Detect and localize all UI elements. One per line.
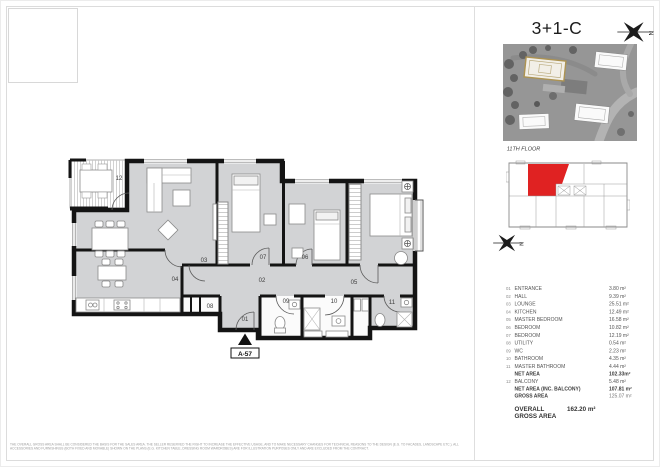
room-label: 02	[259, 278, 266, 284]
legend-row: 03LOUNGE25.51 m²	[506, 301, 654, 309]
site-building-highlighted	[524, 57, 566, 81]
disclaimer-text: THE OVERALL GROSS AREA SHALL BE CONSIDER…	[10, 443, 462, 451]
area-legend: 01ENTRANCE3.80 m² 02HALL9.39 m² 03LOUNGE…	[506, 285, 654, 419]
room-label: 01	[242, 317, 249, 323]
panel-divider	[474, 7, 475, 460]
kitchen-counter	[76, 298, 180, 312]
site-building-3	[574, 103, 610, 123]
room-label: 05	[351, 280, 358, 286]
legend-row: 12BALCONY5.48 m²	[506, 378, 654, 386]
site-building-4	[519, 113, 550, 129]
unit-type-title: 3+1-C	[477, 18, 637, 39]
plan-sheet: 12 03 04 02 07 06 05 01 08 09 10 11 A-57…	[0, 0, 660, 467]
legend-row: 09WC2.23 m²	[506, 347, 654, 355]
balcony	[70, 160, 127, 209]
north-letter: N	[518, 242, 524, 246]
room-label: 10	[331, 299, 338, 305]
room-label: 06	[302, 255, 309, 261]
site-plan-photo	[503, 44, 637, 141]
room-label: 12	[116, 176, 123, 182]
legend-row: 10BATHROOM4.35 m²	[506, 355, 654, 363]
unit-code-label: A-57	[238, 351, 252, 358]
net-area-inc-row: NET AREA (INC. BALCONY)107.81 m²	[506, 386, 654, 393]
bay-window	[413, 200, 423, 251]
key-plan	[506, 160, 630, 230]
logo-placeholder	[8, 8, 78, 83]
entrance-marker: A-57	[231, 334, 259, 359]
legend-row: 01ENTRANCE3.80 m²	[506, 285, 654, 293]
legend-row: 05MASTER BEDROOM16.58 m²	[506, 316, 654, 324]
legend-row: 07BEDROOM12.19 m²	[506, 332, 654, 340]
room-label: 04	[172, 277, 179, 283]
gross-area-row: GROSS AREA125.07 m²	[506, 393, 654, 400]
legend-row: 04KITCHEN12.49 m²	[506, 308, 654, 316]
room-label: 11	[389, 300, 396, 306]
room-label: 07	[260, 255, 267, 261]
tv-unit	[213, 204, 217, 240]
legend-row: 02HALL9.39 m²	[506, 293, 654, 301]
overall-gross-area-row: OVERALL GROSS AREA 162.20 m²	[506, 405, 654, 419]
room-label: 03	[201, 258, 208, 264]
floor-label: 11TH FLOOR	[486, 146, 561, 152]
net-area-row: NET AREA102.33m²	[506, 371, 654, 378]
legend-row: 06BEDROOM10.82 m²	[506, 324, 654, 332]
keyplan-compass-icon: N	[490, 226, 528, 260]
legend-row: 11MASTER BATHROOM4.44 m²	[506, 363, 654, 371]
room-label: 08	[207, 304, 214, 310]
site-building-2	[594, 51, 627, 70]
room-label: 09	[283, 299, 290, 305]
dining-table	[92, 221, 128, 257]
north-letter: N	[647, 31, 654, 36]
legend-row: 08UTILITY0.54 m²	[506, 340, 654, 348]
floor-plan: 12 03 04 02 07 06 05 01 08 09 10 11 A-57	[52, 148, 472, 383]
